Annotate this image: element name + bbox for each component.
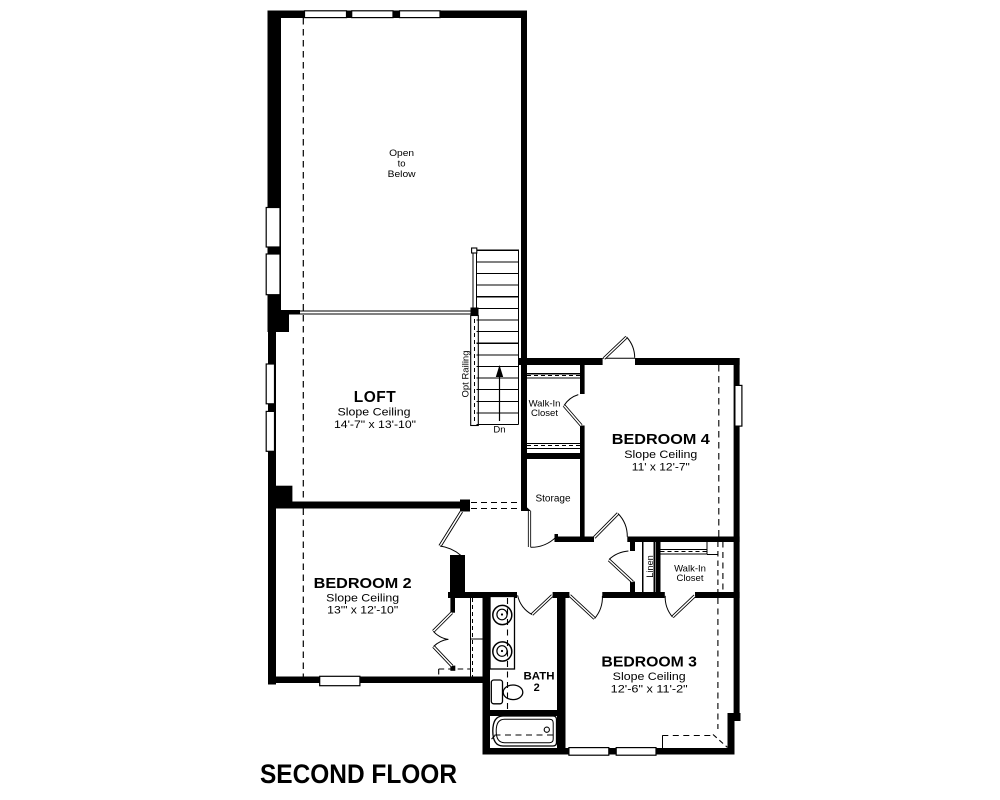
svg-text:Slope Ceiling: Slope Ceiling — [613, 671, 686, 683]
svg-text:Opt Railing: Opt Railing — [460, 351, 471, 398]
svg-text:Slope Ceiling: Slope Ceiling — [326, 593, 399, 605]
svg-text:14'-7" x 13'-10": 14'-7" x 13'-10" — [334, 419, 416, 431]
svg-text:BEDROOM 3: BEDROOM 3 — [601, 654, 697, 671]
svg-text:BEDROOM 2: BEDROOM 2 — [314, 575, 412, 592]
svg-text:SECOND FLOOR: SECOND FLOOR — [260, 759, 457, 789]
svg-text:Slope Ceiling: Slope Ceiling — [624, 449, 697, 461]
svg-text:Closet: Closet — [531, 408, 558, 419]
svg-text:13'" x 12'-10": 13'" x 12'-10" — [327, 605, 398, 617]
svg-text:12'-6" x 11'-2": 12'-6" x 11'-2" — [611, 683, 688, 695]
svg-text:BEDROOM 4: BEDROOM 4 — [612, 431, 711, 448]
svg-text:Slope Ceiling: Slope Ceiling — [338, 407, 411, 419]
svg-text:Linen: Linen — [645, 555, 655, 578]
svg-text:Dn: Dn — [493, 425, 505, 436]
svg-text:Below: Below — [388, 169, 416, 180]
svg-text:Open: Open — [389, 148, 414, 159]
svg-text:11' x 12'-7": 11' x 12'-7" — [632, 461, 690, 473]
svg-text:Storage: Storage — [535, 493, 570, 504]
svg-text:2: 2 — [534, 682, 540, 694]
svg-text:BATH: BATH — [524, 671, 555, 683]
svg-text:LOFT: LOFT — [354, 389, 396, 406]
svg-text:Closet: Closet — [677, 573, 704, 584]
svg-text:to: to — [398, 159, 406, 170]
